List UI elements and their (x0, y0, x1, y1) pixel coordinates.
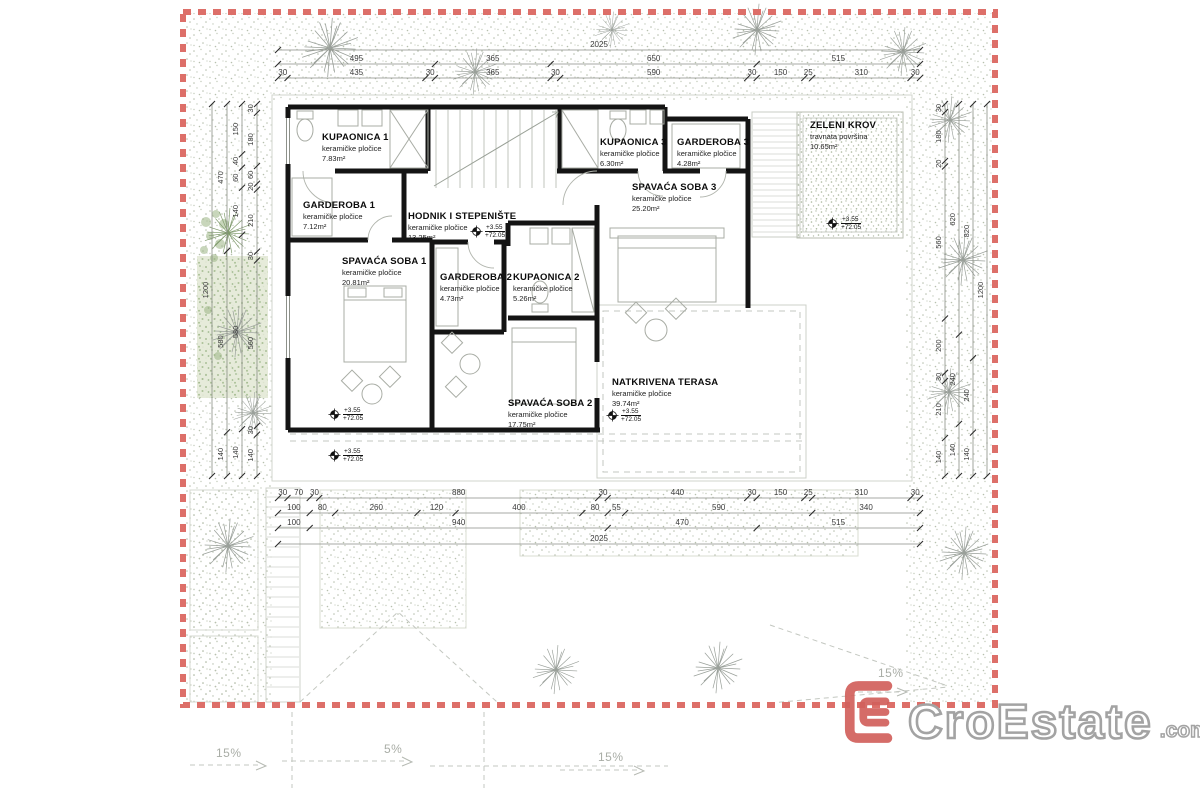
svg-text:560: 560 (934, 236, 943, 249)
svg-text:30: 30 (748, 488, 757, 497)
svg-text:650: 650 (647, 54, 661, 63)
svg-text:200: 200 (934, 339, 943, 352)
svg-text:70: 70 (294, 488, 303, 497)
svg-text:30: 30 (278, 488, 287, 497)
level-marker: +3.55+72.05 (470, 224, 505, 240)
room-label-kupaonica-1: KUPAONICA 1 keramičke pločice 7.83m² (322, 132, 389, 163)
svg-text:210: 210 (246, 214, 255, 227)
svg-text:30: 30 (748, 68, 757, 77)
svg-text:100: 100 (287, 503, 301, 512)
svg-text:30: 30 (934, 373, 943, 381)
svg-text:880: 880 (452, 488, 466, 497)
svg-text:365: 365 (486, 68, 500, 77)
room-label-spavaca-soba-1: SPAVAĆA SOBA 1 keramičke pločice 20.81m² (342, 256, 426, 287)
slope-label-mid-right: 15% (598, 750, 624, 764)
svg-text:180: 180 (934, 130, 943, 143)
svg-text:580: 580 (231, 326, 240, 339)
svg-text:25: 25 (804, 68, 813, 77)
svg-text:495: 495 (350, 54, 364, 63)
svg-text:30: 30 (934, 104, 943, 112)
svg-text:2025: 2025 (590, 40, 608, 49)
svg-text:210: 210 (934, 403, 943, 416)
svg-text:30: 30 (246, 104, 255, 112)
svg-text:470: 470 (216, 171, 225, 184)
svg-text:340: 340 (859, 503, 873, 512)
svg-text:25: 25 (804, 488, 813, 497)
level-marker: +3.55+72.05 (328, 407, 363, 423)
svg-text:620: 620 (948, 213, 957, 226)
svg-text:820: 820 (962, 225, 971, 238)
svg-text:515: 515 (832, 54, 846, 63)
svg-text:20: 20 (246, 182, 255, 190)
svg-text:80: 80 (591, 503, 600, 512)
svg-text:120: 120 (430, 503, 444, 512)
room-label-spavaca-soba-2: SPAVAĆA SOBA 2 keramičke pločice 17.75m² (508, 398, 592, 429)
floor-plan-canvas: 2025495365650515304353036530590301502531… (0, 0, 1200, 800)
svg-text:515: 515 (832, 518, 846, 527)
svg-text:440: 440 (671, 488, 685, 497)
svg-text:580: 580 (216, 335, 225, 348)
svg-text:100: 100 (287, 518, 301, 527)
room-label-spavaca-soba-3: SPAVAĆA SOBA 3 keramičke pločice 25.20m² (632, 182, 716, 213)
svg-text:310: 310 (855, 68, 869, 77)
staircase (434, 110, 558, 188)
svg-text:30: 30 (246, 426, 255, 434)
svg-text:240: 240 (962, 389, 971, 402)
svg-text:140: 140 (948, 444, 957, 457)
svg-text:560: 560 (246, 337, 255, 350)
svg-text:1200: 1200 (201, 282, 210, 299)
svg-text:180: 180 (246, 133, 255, 146)
svg-text:1200: 1200 (976, 282, 985, 299)
svg-text:60: 60 (231, 174, 240, 182)
svg-text:590: 590 (712, 503, 726, 512)
svg-text:30: 30 (278, 68, 287, 77)
level-marker-icon (328, 449, 341, 462)
level-marker: +3.55+72.05 (328, 448, 363, 464)
svg-text:310: 310 (855, 488, 869, 497)
room-label-zeleni-krov: ZELENI KROV travnata površina 10.65m² (810, 120, 876, 151)
slope-label-near-logo: 15% (878, 666, 904, 680)
svg-text:240: 240 (948, 373, 957, 386)
croestate-logo-text: CroEstate (908, 703, 1153, 744)
level-marker-icon (328, 408, 341, 421)
svg-text:30: 30 (911, 68, 920, 77)
svg-text:30: 30 (551, 68, 560, 77)
svg-text:260: 260 (370, 503, 384, 512)
room-label-garderoba-3: GARDEROBA 3 keramičke pločice 4.28m² (677, 137, 749, 168)
croestate-logo: CroEstate .com (843, 680, 1200, 744)
level-marker: +3.55+72.05 (606, 408, 641, 424)
svg-text:30: 30 (599, 488, 608, 497)
svg-text:30: 30 (310, 488, 319, 497)
croestate-logo-icon (843, 680, 901, 744)
level-marker-icon (470, 225, 483, 238)
svg-text:470: 470 (676, 518, 690, 527)
room-label-garderoba-1: GARDEROBA 1 keramičke pločice 7.12m² (303, 200, 375, 231)
svg-text:590: 590 (647, 68, 661, 77)
svg-text:150: 150 (774, 68, 788, 77)
svg-text:435: 435 (350, 68, 364, 77)
svg-text:940: 940 (452, 518, 466, 527)
svg-text:365: 365 (486, 54, 500, 63)
room-label-natkrivena-terasa: NATKRIVENA TERASA keramičke pločice 39.7… (612, 377, 718, 408)
svg-text:140: 140 (246, 449, 255, 462)
svg-text:400: 400 (512, 503, 526, 512)
slope-annotations (190, 612, 948, 788)
svg-text:30: 30 (246, 252, 255, 260)
svg-text:140: 140 (216, 448, 225, 461)
svg-text:140: 140 (231, 205, 240, 218)
level-marker: +3.55+72.05 (826, 216, 861, 232)
croestate-logo-tld: .com (1160, 718, 1200, 744)
svg-text:20: 20 (934, 160, 943, 168)
svg-text:150: 150 (774, 488, 788, 497)
svg-text:55: 55 (612, 503, 621, 512)
room-label-garderoba-2: GARDEROBA 2 keramičke pločice 4.73m² (440, 272, 512, 303)
svg-text:60: 60 (246, 171, 255, 179)
svg-text:140: 140 (231, 446, 240, 459)
room-label-kupaonica-3: KUPAONICA 3 keramičke pločice 6.30m² (600, 137, 667, 168)
svg-text:140: 140 (962, 448, 971, 461)
svg-text:150: 150 (231, 123, 240, 136)
svg-text:140: 140 (934, 451, 943, 464)
slope-label-left: 15% (216, 746, 242, 760)
svg-text:30: 30 (911, 488, 920, 497)
room-label-kupaonica-2: KUPAONICA 2 keramičke pločice 5.26m² (513, 272, 580, 303)
svg-text:80: 80 (318, 503, 327, 512)
level-marker-icon (826, 217, 839, 230)
svg-text:2025: 2025 (590, 534, 608, 543)
level-marker-icon (606, 409, 619, 422)
slope-label-center: 5% (384, 742, 402, 756)
svg-text:40: 40 (231, 157, 240, 165)
svg-text:30: 30 (426, 68, 435, 77)
